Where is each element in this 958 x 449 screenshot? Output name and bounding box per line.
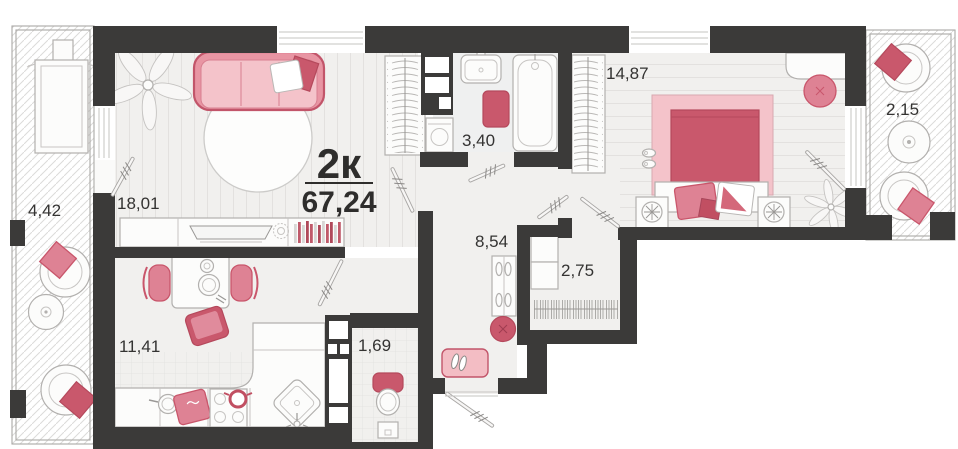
sofa	[194, 52, 324, 110]
pouf	[491, 317, 516, 342]
entrance-door	[443, 389, 496, 430]
doormat	[442, 349, 488, 377]
loggia-left: 4,42	[10, 26, 96, 444]
wardrobe-bedroom	[572, 55, 605, 173]
shoe-rack	[492, 256, 516, 316]
floor-plan: 4,42 2,15	[0, 0, 958, 449]
closet-box	[531, 236, 558, 262]
area-label-loggia-right: 2,15	[886, 100, 919, 119]
window-living-balcony	[95, 106, 115, 193]
stove	[210, 389, 252, 427]
area-label-bedroom: 14,87	[606, 64, 649, 83]
floor-plan-svg: 4,42 2,15	[0, 0, 958, 449]
window-bedroom	[629, 26, 710, 53]
stool	[804, 75, 836, 107]
total-area-label: 67,24	[301, 186, 376, 219]
area-label-bathroom: 3,40	[462, 131, 495, 150]
area-label-kitchen: 11,41	[119, 337, 160, 356]
tv-console	[120, 218, 344, 247]
loggia-right-table	[888, 121, 930, 163]
wardrobe-living	[385, 56, 425, 155]
area-label-wc: 1,69	[358, 336, 391, 355]
apartment-type-label: 2к	[317, 140, 362, 187]
bed	[652, 95, 773, 220]
bathtub	[513, 54, 557, 151]
window-bedroom-balcony	[847, 106, 864, 188]
closet-rail	[534, 300, 618, 319]
tv-icon	[190, 226, 272, 239]
bath-mat	[483, 91, 509, 127]
sofa-pillow-white	[270, 60, 304, 94]
sink-bath	[461, 51, 501, 83]
loggia-right: 2,15	[866, 30, 955, 240]
area-label-hallway: 8,54	[475, 232, 508, 251]
area-label-living: 18,01	[117, 194, 160, 213]
nightstand-left	[636, 197, 668, 228]
loggia-left-table	[29, 295, 64, 330]
area-label-closet: 2,75	[561, 261, 594, 280]
window-living	[277, 26, 365, 53]
closet-box	[531, 262, 558, 289]
washing-machine	[426, 118, 453, 152]
nightstand-right	[758, 197, 790, 228]
area-label-loggia-left: 4,42	[28, 201, 61, 220]
dining-table	[172, 253, 229, 308]
toilet	[373, 373, 403, 438]
pot-icon	[230, 391, 246, 407]
